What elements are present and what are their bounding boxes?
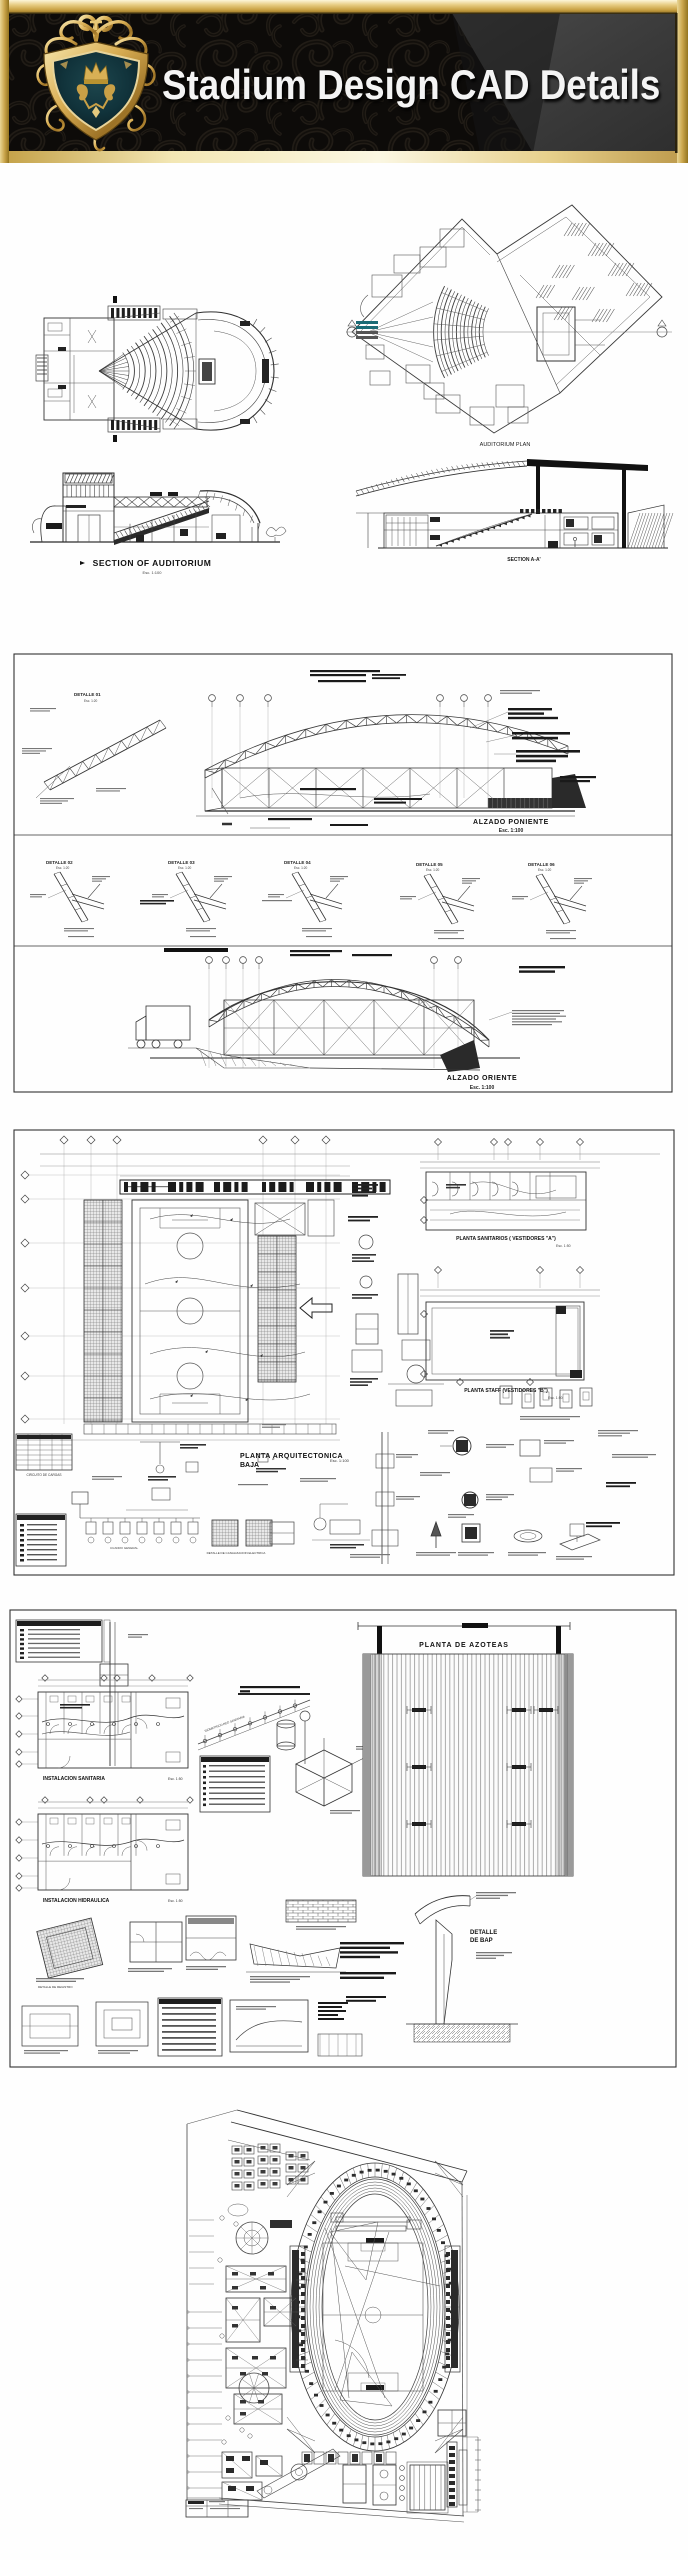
svg-text:Esc. 1:100: Esc. 1:100 [143,570,163,575]
svg-text:CIRCUITO DE CARGAS: CIRCUITO DE CARGAS [26,1473,61,1477]
svg-text:Esc. 1:50: Esc. 1:50 [548,1396,563,1400]
svg-text:DETALLE 05: DETALLE 05 [416,862,443,867]
svg-text:SECTION OF AUDITORIUM: SECTION OF AUDITORIUM [93,558,212,568]
svg-text:ALZADO PONIENTE: ALZADO PONIENTE [473,819,549,826]
svg-text:DETALLE 01: DETALLE 01 [74,692,101,697]
svg-text:Esc. 1:50: Esc. 1:50 [168,1777,183,1781]
svg-text:INSTALACION HIDRAULICA: INSTALACION HIDRAULICA [43,1898,110,1904]
svg-text:Esc. 1:20: Esc. 1:20 [538,868,552,872]
svg-text:PLANTA ARQUITECTONICA: PLANTA ARQUITECTONICA [240,1453,343,1460]
svg-text:DETALLE 03: DETALLE 03 [168,860,195,865]
svg-text:PLANTA DE AZOTEAS: PLANTA DE AZOTEAS [419,1642,509,1649]
svg-text:Esc. 1:50: Esc. 1:50 [556,1244,571,1248]
svg-text:CUADRO GENERAL: CUADRO GENERAL [110,1546,139,1550]
svg-text:Esc. 1:20: Esc. 1:20 [56,866,70,870]
svg-text:SECTION A-A': SECTION A-A' [507,557,541,563]
svg-text:DETALLE 02: DETALLE 02 [46,860,73,865]
svg-text:Esc. 1:50: Esc. 1:50 [168,1899,183,1903]
svg-text:PLANTA SANITARIOS ( VESTIDORES: PLANTA SANITARIOS ( VESTIDORES "A") [456,1236,556,1242]
svg-text:PLANTA STAFF (VESTIDORES "B"): PLANTA STAFF (VESTIDORES "B") [464,1388,548,1394]
svg-text:Esc. 1:20: Esc. 1:20 [426,868,440,872]
svg-text:BAJA: BAJA [240,1462,259,1469]
svg-text:AUDITORIUM PLAN: AUDITORIUM PLAN [480,442,531,448]
svg-text:Esc. 1:20: Esc. 1:20 [84,699,98,703]
svg-text:Esc. 1:20: Esc. 1:20 [294,866,308,870]
svg-text:DETALLE DE REGISTRO: DETALLE DE REGISTRO [38,1985,73,1989]
svg-text:DETALLE DE CANALIZACION ELECTR: DETALLE DE CANALIZACION ELECTRICA [207,1551,266,1555]
svg-text:Esc. 1:100: Esc. 1:100 [330,1458,350,1463]
svg-text:Esc. 1:100: Esc. 1:100 [470,1085,495,1091]
svg-text:ALZADO ORIENTE: ALZADO ORIENTE [447,1075,518,1082]
svg-text:DE BAP: DE BAP [470,1938,493,1944]
svg-text:DETALLE 04: DETALLE 04 [284,860,311,865]
svg-text:Esc. 1:20: Esc. 1:20 [178,866,192,870]
svg-text:DETALLE 06: DETALLE 06 [528,862,555,867]
svg-text:INSTALACION SANITARIA: INSTALACION SANITARIA [43,1776,105,1782]
svg-text:DETALLE: DETALLE [470,1930,497,1936]
svg-text:ISOMETRICO RED SANITARIA: ISOMETRICO RED SANITARIA [204,1715,245,1733]
svg-text:Esc. 1:100: Esc. 1:100 [499,828,524,834]
